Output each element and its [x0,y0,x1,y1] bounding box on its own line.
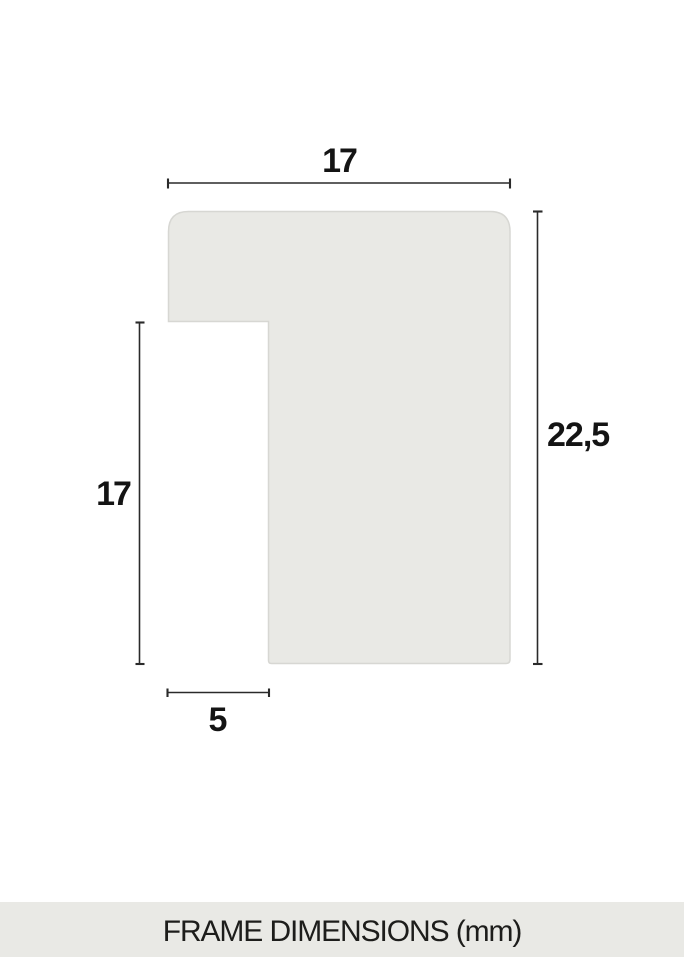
svg-text:22,5: 22,5 [547,416,609,454]
svg-text:17: 17 [96,475,131,513]
svg-text:5: 5 [209,701,228,739]
svg-text:17: 17 [322,142,357,180]
svg-text:FRAME DIMENSIONS (mm): FRAME DIMENSIONS (mm) [163,915,522,948]
